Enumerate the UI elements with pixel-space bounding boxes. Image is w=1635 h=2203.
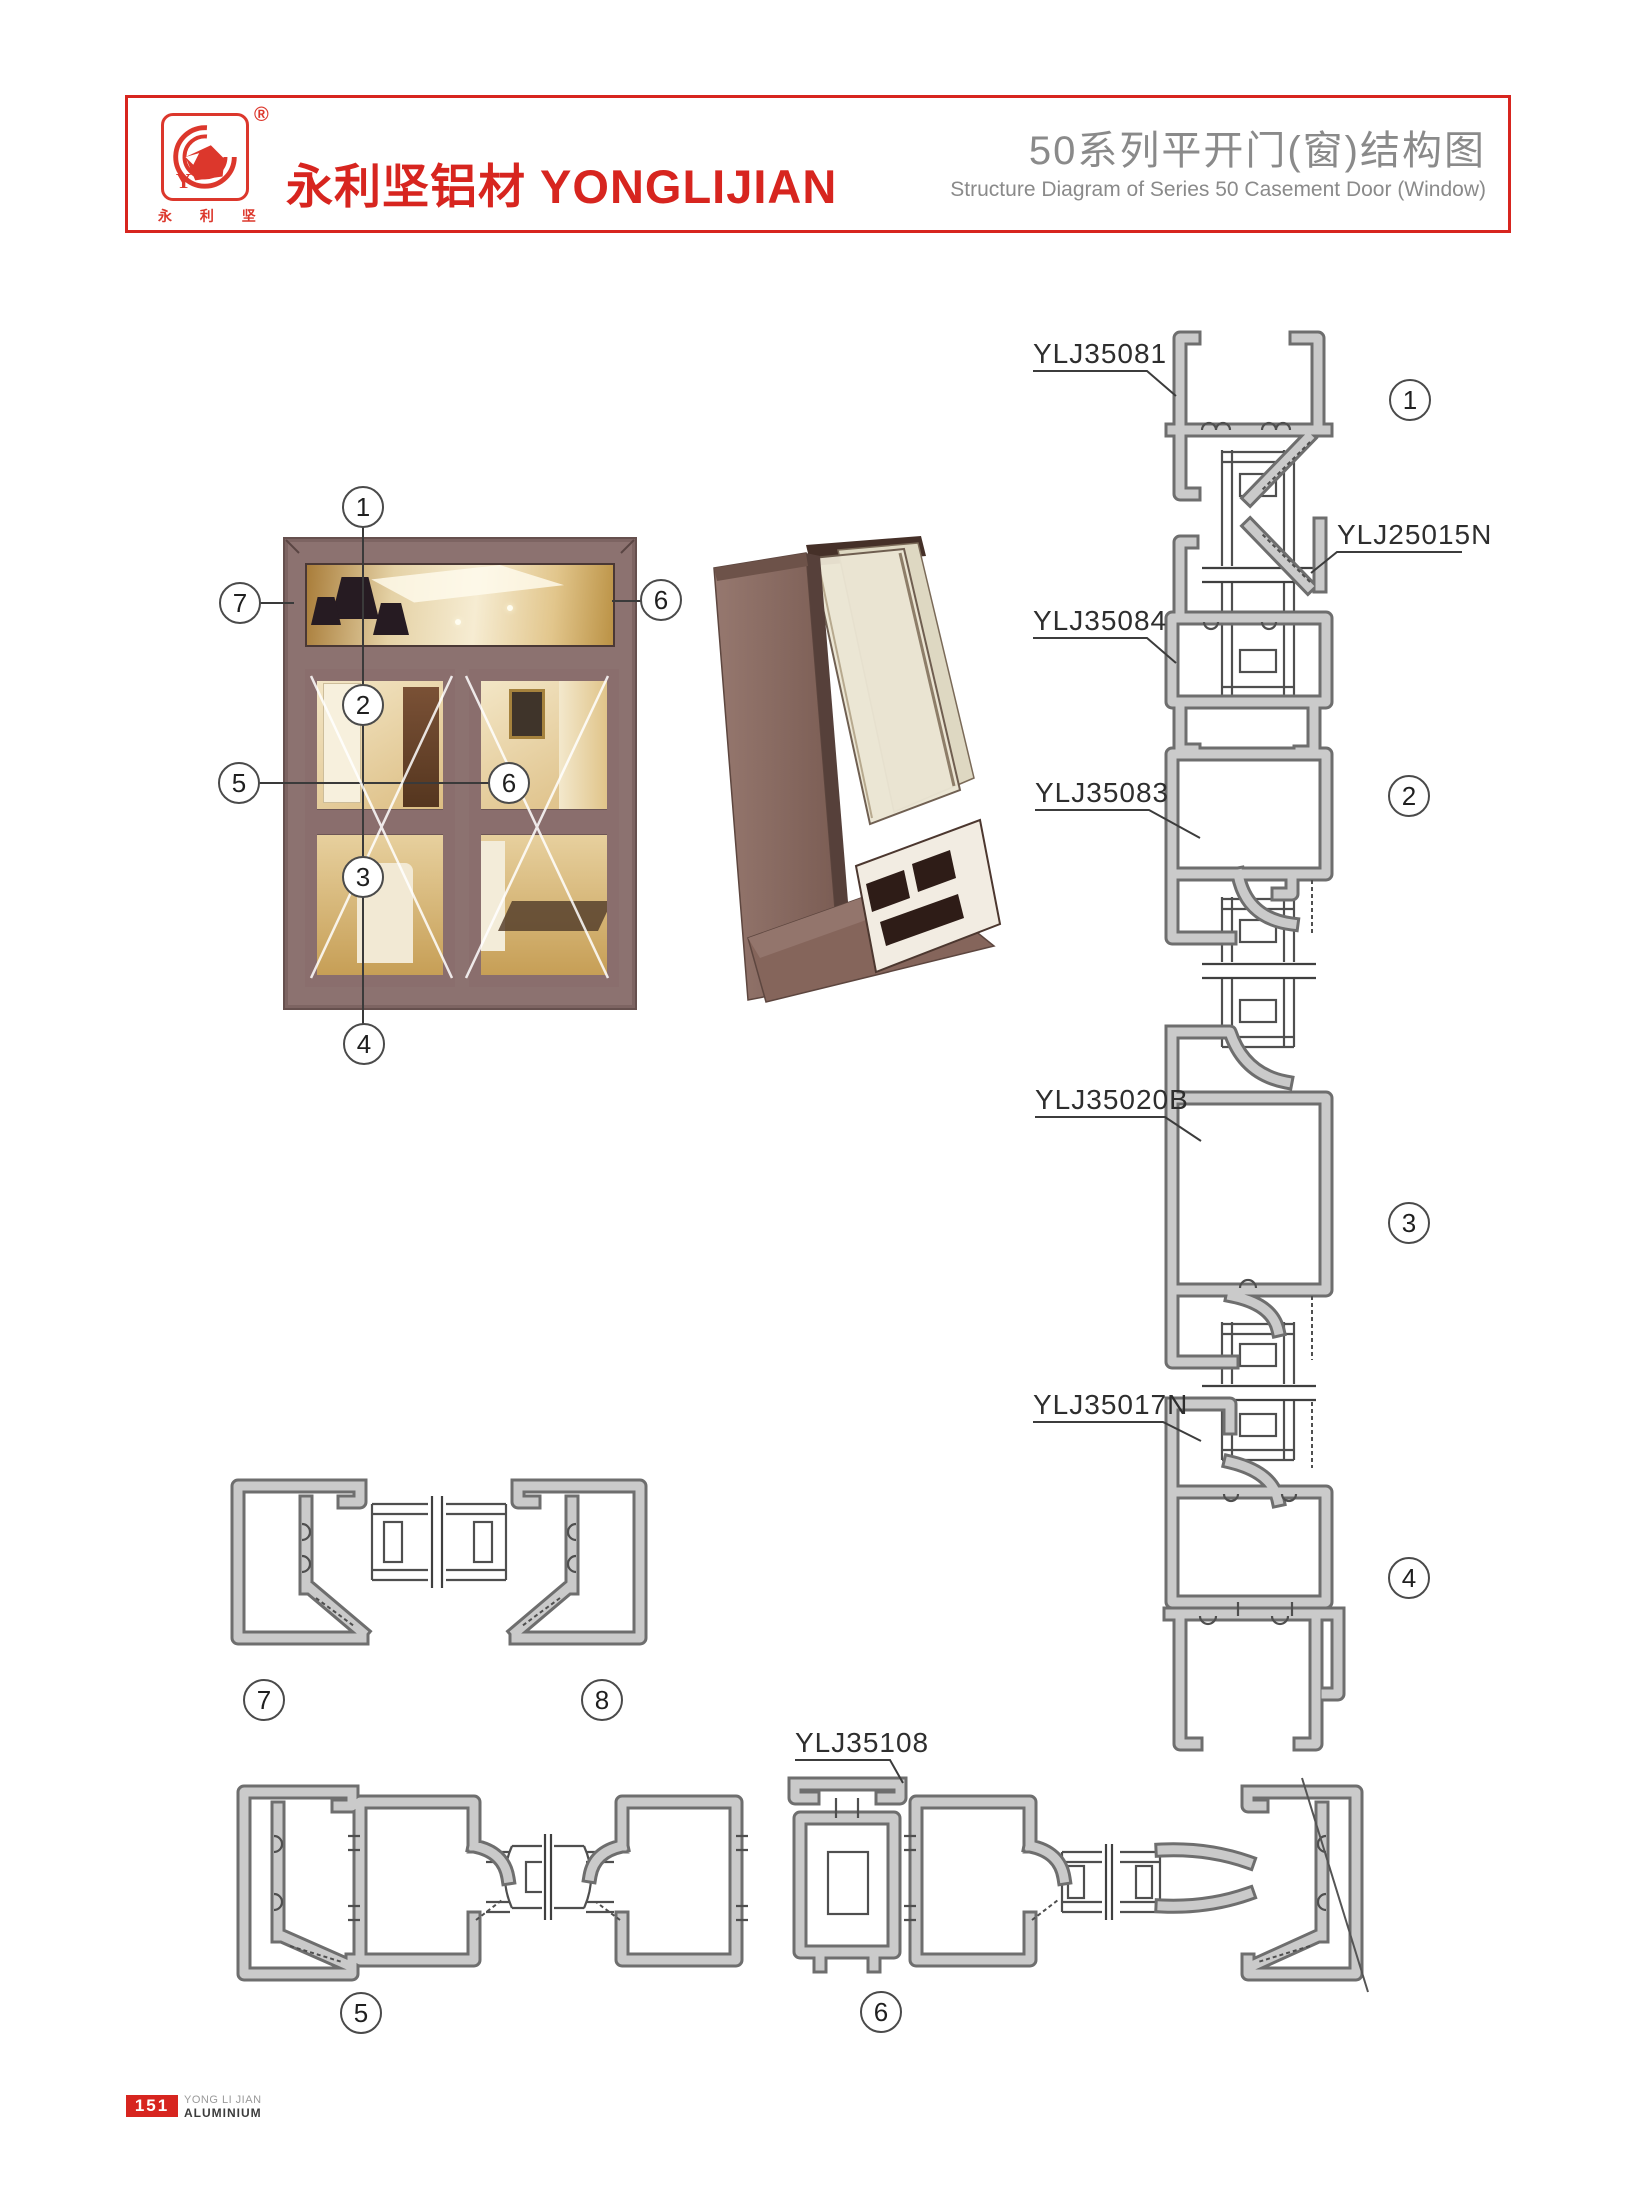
part-label-ylj25015n: YLJ25015N [1337,519,1492,551]
section-callout-4: 4 [1388,1557,1430,1599]
interior-rug [498,901,612,931]
photo-callout-3: 3 [342,856,384,898]
part-label-ylj35084: YLJ35084 [1033,605,1167,637]
right-sash-lower-glass [481,835,607,977]
section-callout-1: 1 [1389,379,1431,421]
brand-name: 永利坚铝材 YONGLIJIAN [286,148,837,217]
photo-callout-4: 4 [343,1023,385,1065]
interior-stairs [403,687,439,807]
footer-brand-line2: ALUMINIUM [184,2106,262,2120]
interior-chair-edge [481,841,505,951]
part-label-ylj35020b: YLJ35020B [1035,1084,1189,1116]
right-sash-midrail [481,809,607,835]
right-casement-sash [469,669,619,987]
left-sash-lower-glass [317,835,443,977]
left-sash-midrail [317,809,443,835]
chandelier-shade [331,577,379,619]
section-callout-3: 3 [1388,1202,1430,1244]
footer-brand-line1: YONG LI JIAN [184,2094,262,2106]
logo-characters: 永 利 坚 [158,206,268,226]
photo-callout-2: 2 [342,684,384,726]
part-label-ylj35017n: YLJ35017N [1033,1389,1188,1421]
logo-swirl-icon: Y [164,116,246,198]
ceiling-spotlight [455,619,461,625]
catalog-page: Y ® 永 利 坚 永利坚铝材 YONGLIJIAN 50系列平开门(窗)结构图… [0,0,1635,2203]
photo-callout-5: 5 [218,762,260,804]
logo-monogram: Y [176,169,192,193]
part-label-ylj35108: YLJ35108 [795,1727,929,1759]
page-title: 50系列平开门(窗)结构图 [1029,118,1486,176]
leader-lines [795,371,1462,1783]
section-callout-2: 2 [1388,775,1430,817]
section-callout-8: 8 [581,1679,623,1721]
picture-frame [509,689,545,739]
corner-render-3d [714,536,1000,1002]
break-line [1302,1778,1368,1992]
page-number-badge: 151 [126,2095,178,2117]
section-callout-7: 7 [243,1679,285,1721]
company-logo: Y [161,113,249,201]
ceiling-spotlight [507,605,513,611]
registered-trademark: ® [254,104,269,127]
photo-callout-7: 7 [219,582,261,624]
chandelier-shade [373,603,409,635]
section-callout-5: 5 [340,1992,382,2034]
photo-callout-6b: 6 [640,579,682,621]
photo-callout-6: 6 [488,762,530,804]
technical-drawings [0,0,1635,2203]
window-photo [283,537,637,1010]
transom-glass [305,563,615,647]
section-callout-6: 6 [860,1991,902,2033]
photo-callout-1: 1 [342,486,384,528]
part-label-ylj35083: YLJ35083 [1035,777,1169,809]
part-label-ylj35081: YLJ35081 [1033,338,1167,370]
interior-wall [559,681,607,809]
header-bar: Y ® 永 利 坚 永利坚铝材 YONGLIJIAN 50系列平开门(窗)结构图… [125,95,1511,233]
page-subtitle: Structure Diagram of Series 50 Casement … [950,178,1486,202]
